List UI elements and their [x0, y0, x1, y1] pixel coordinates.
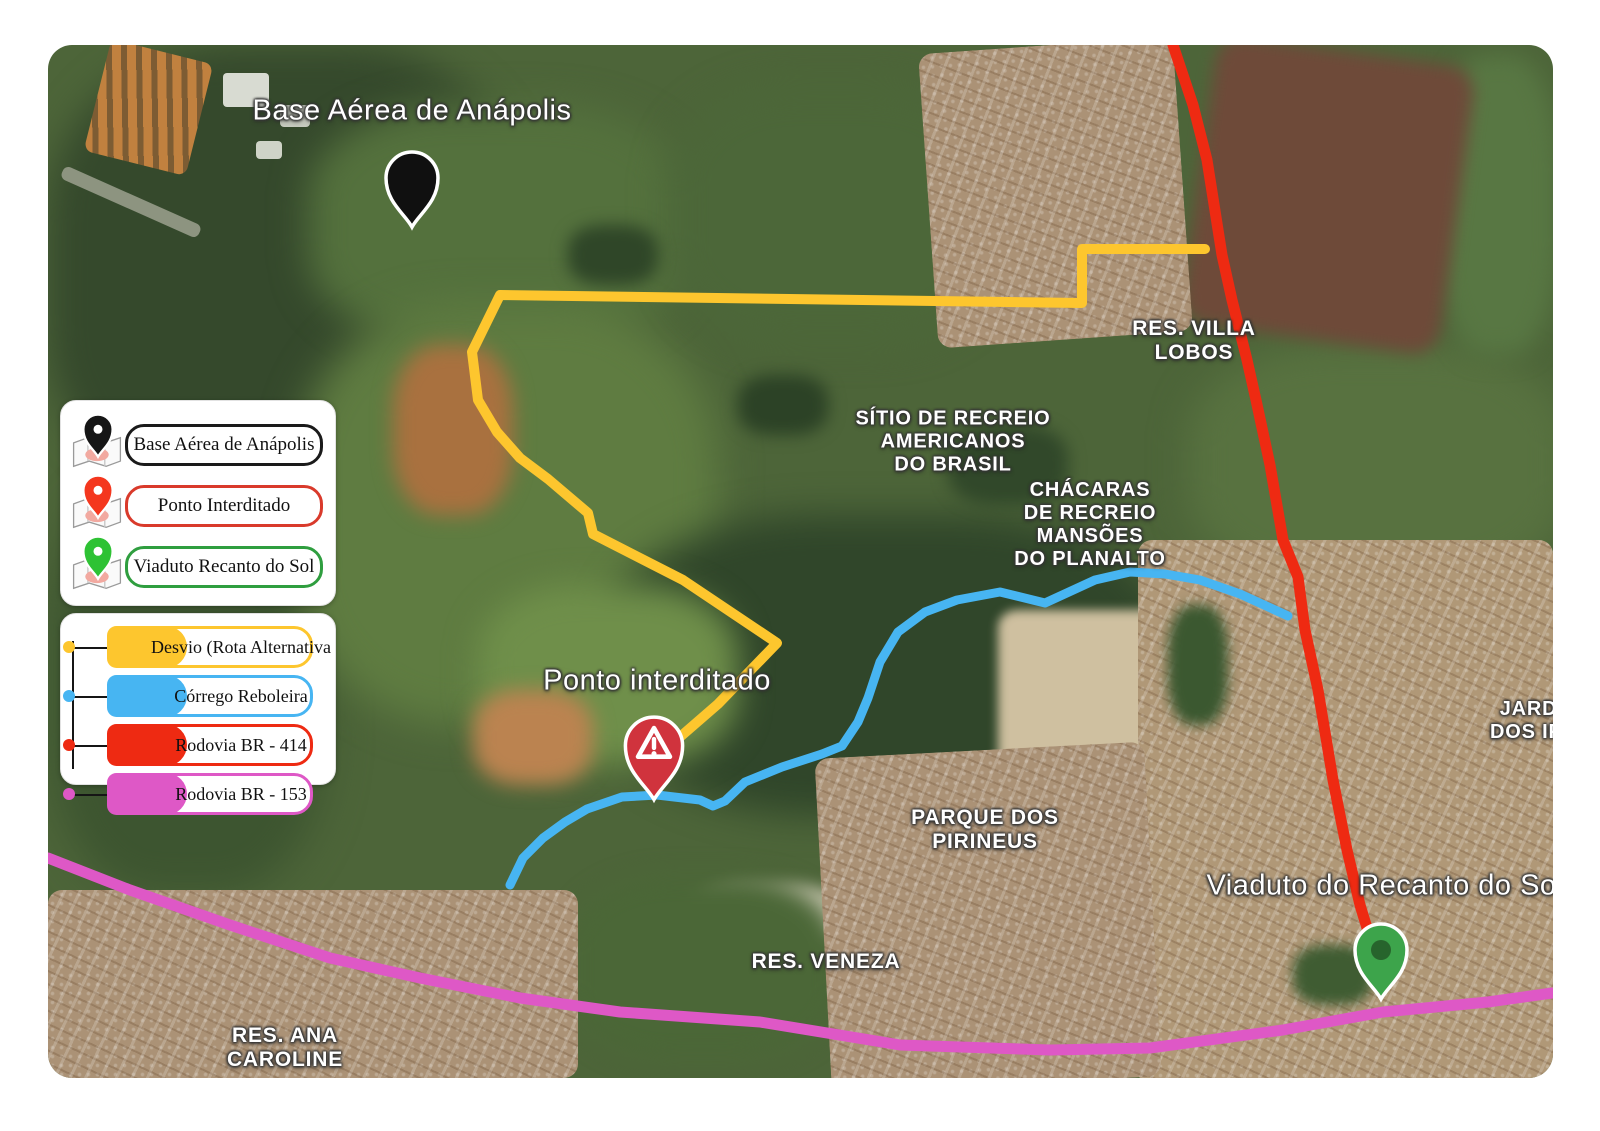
legend-route-dot	[63, 690, 75, 702]
pin-hole	[94, 425, 103, 434]
legend-marker-row: Viaduto Recanto do Sol	[71, 539, 323, 591]
warning-exclamation-dot	[651, 751, 656, 756]
legend-connector	[72, 794, 108, 796]
legend-route-row: Rodovia BR - 414	[107, 724, 313, 766]
legend-marker-row: Base Aérea de Anápolis	[71, 417, 323, 469]
legend-route-label: Rodovia BR - 153	[175, 784, 307, 805]
legend-route-row: Córrego Reboleira	[107, 675, 313, 717]
legend-marker-pill: Base Aérea de Anápolis	[125, 424, 323, 466]
legend-route-label: Rodovia BR - 414	[175, 735, 307, 756]
legend-pin-icon	[81, 474, 115, 520]
pin-hole	[94, 486, 103, 495]
legend-pin-icon	[81, 535, 115, 581]
legend-marker-label: Viaduto Recanto do Sol	[134, 556, 315, 578]
black-pin-icon[interactable]	[386, 152, 438, 227]
legend-pin-icon	[81, 413, 115, 459]
legend-marker-label: Ponto Interditado	[158, 495, 290, 517]
legend-markers-box: Base Aérea de Anápolis Ponto Interditado	[60, 400, 336, 606]
legend-route-dot	[63, 641, 75, 653]
legend-route-row: Rodovia BR - 153	[107, 773, 313, 815]
green-pin-icon[interactable]	[1355, 924, 1407, 999]
legend-marker-pill: Viaduto Recanto do Sol	[125, 546, 323, 588]
legend-connector	[72, 745, 108, 747]
pin-hole	[94, 547, 103, 556]
legend-route-label: Desvio (Rota Alternativa	[151, 637, 331, 658]
legend-marker-pill: Ponto Interditado	[125, 485, 323, 527]
legend-route-dot	[63, 739, 75, 751]
legend-route-label: Córrego Reboleira	[174, 686, 307, 707]
map-fold-icon	[71, 539, 125, 591]
legend-routes-box: Desvio (Rota Alternativa Córrego Rebolei…	[60, 613, 336, 785]
map-fold-icon	[71, 417, 125, 469]
legend-connector	[72, 647, 108, 649]
legend-connector	[72, 696, 108, 698]
legend-route-row: Desvio (Rota Alternativa	[107, 626, 313, 668]
warning-pin-icon[interactable]	[625, 717, 682, 800]
legend-marker-row: Ponto Interditado	[71, 478, 323, 530]
pin-inner-circle	[1371, 940, 1391, 960]
satellite-map: Base Aérea de Anápolis RES. VILLA LOBOS …	[48, 45, 1553, 1078]
legend-route-dot	[63, 788, 75, 800]
legend-marker-label: Base Aérea de Anápolis	[134, 434, 315, 456]
map-infographic: Base Aérea de Anápolis RES. VILLA LOBOS …	[0, 0, 1600, 1131]
map-fold-icon	[71, 478, 125, 530]
